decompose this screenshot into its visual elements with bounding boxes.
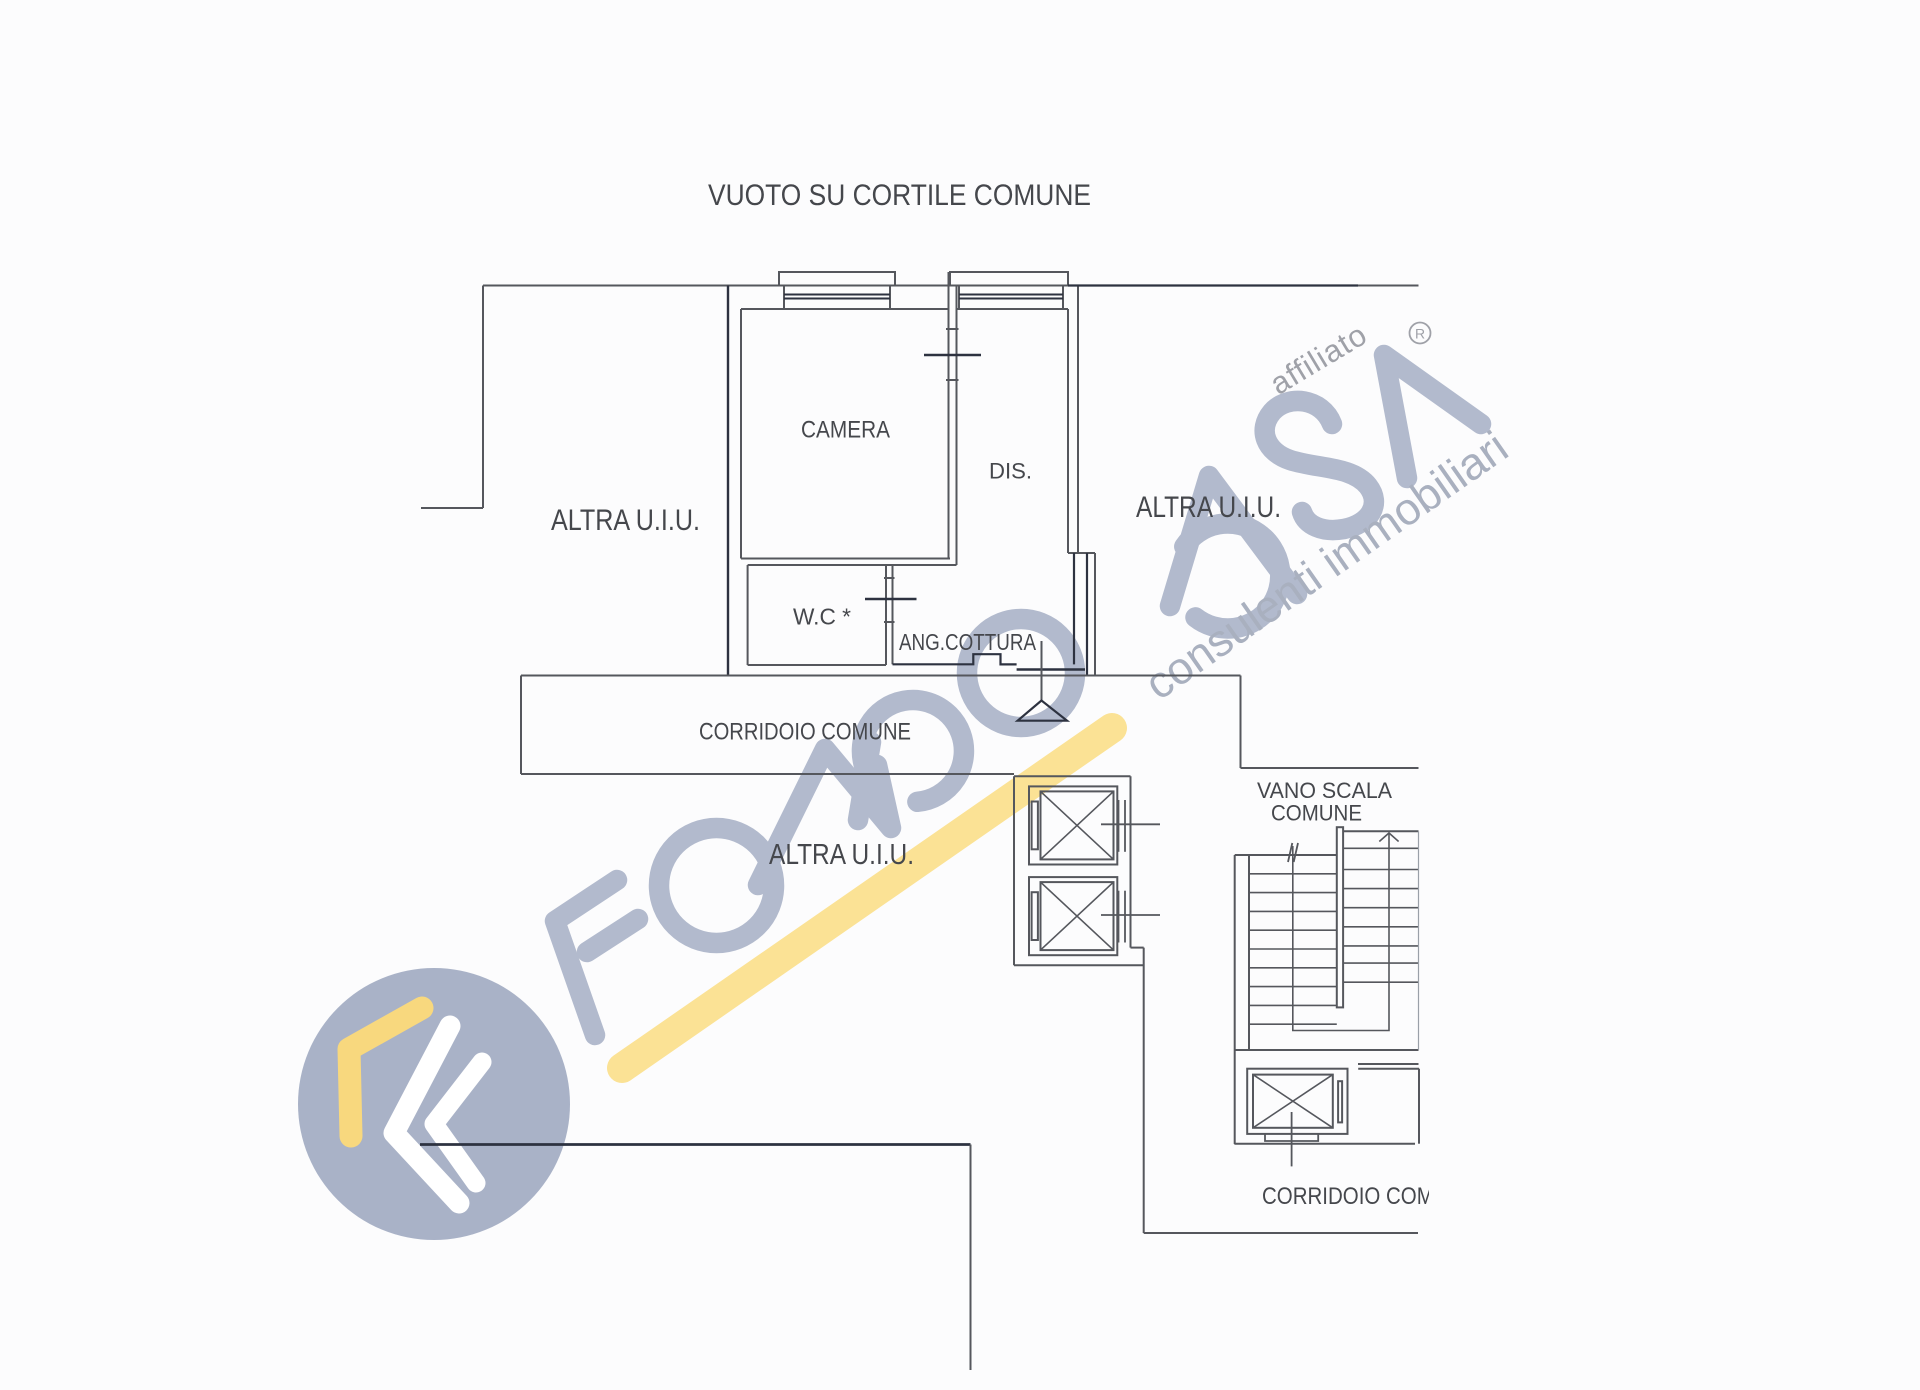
svg-text:ALTRA U.I.U.: ALTRA U.I.U.: [1136, 491, 1281, 524]
svg-text:CORRIDOIO COMUNE: CORRIDOIO COMUNE: [699, 719, 911, 746]
svg-text:DIS.: DIS.: [989, 459, 1032, 484]
svg-text:ALTRA U.I.U.: ALTRA U.I.U.: [551, 504, 700, 537]
svg-text:ANG.COTTURA: ANG.COTTURA: [899, 629, 1037, 655]
svg-text:COMUNE: COMUNE: [1271, 801, 1362, 826]
svg-text:VANO SCALA: VANO SCALA: [1257, 778, 1392, 803]
svg-text:W.C *: W.C *: [793, 604, 851, 630]
svg-text:ALTRA U.I.U.: ALTRA U.I.U.: [769, 839, 914, 871]
svg-text:R: R: [1415, 326, 1425, 342]
svg-text:VUOTO SU CORTILE COMUNE: VUOTO SU CORTILE COMUNE: [708, 179, 1091, 212]
svg-text:CAMERA: CAMERA: [801, 417, 890, 444]
